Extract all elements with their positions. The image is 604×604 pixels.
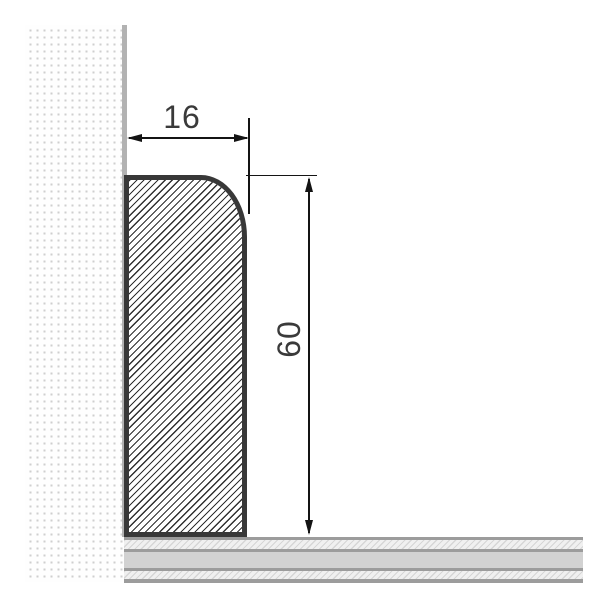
height-extension-line: [246, 175, 317, 177]
height-dimension-label: 60: [273, 320, 305, 358]
arrowhead-right-icon: [234, 134, 249, 142]
arrowhead-left-icon: [127, 134, 142, 142]
floor-hatch-band-upper: [124, 540, 583, 549]
wall-section: [25, 25, 127, 582]
width-extension-line: [248, 118, 250, 214]
floor-hatch-band-lower: [124, 571, 583, 579]
width-dimension-label: 16: [163, 101, 201, 133]
arrowhead-up-icon: [305, 177, 313, 192]
arrowhead-down-icon: [305, 520, 313, 535]
height-dimension-line: [308, 179, 310, 533]
skirting-profile: [124, 175, 247, 537]
floor-section: [124, 537, 583, 583]
floor-core-band: [124, 552, 583, 568]
skirting-board-cross-section-drawing: 16 60: [0, 0, 604, 604]
width-dimension-line: [129, 137, 247, 139]
floor-bottom-line: [124, 579, 583, 583]
